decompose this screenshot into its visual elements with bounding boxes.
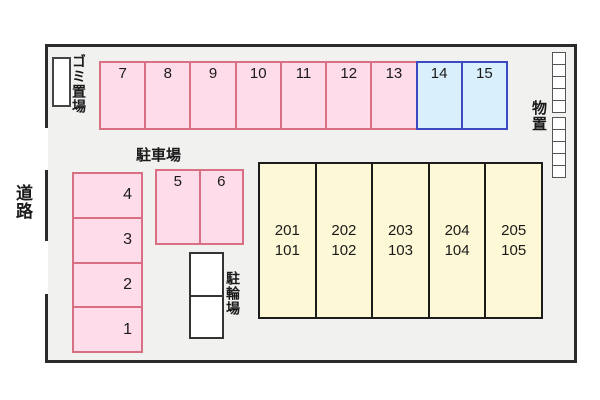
parking-space-number: 12 xyxy=(340,65,357,82)
site-border-top xyxy=(45,44,577,47)
site-layout-diagram: 道路 ゴミ置場 7 8 9 10 11 12 13 14 15 駐車場 4 3 … xyxy=(0,0,600,400)
parking-space-number: 11 xyxy=(296,65,312,82)
unit-number-upper: 201 xyxy=(275,221,300,241)
garbage-area-label: ゴミ置場 xyxy=(72,54,86,114)
parking-space: 15 xyxy=(461,61,508,130)
unit-number-upper: 204 xyxy=(445,221,470,241)
parking-space: 8 xyxy=(144,61,191,130)
site-border-right xyxy=(574,44,577,363)
parking-space-number: 6 xyxy=(217,173,225,190)
parking-space: 3 xyxy=(72,217,143,264)
site-border-left-segment-3 xyxy=(45,294,48,363)
site-border-bottom xyxy=(45,360,577,363)
parking-space-number: 1 xyxy=(123,321,132,339)
bicycle-parking-boxes xyxy=(189,252,224,339)
parking-space-number: 14 xyxy=(431,65,448,82)
parking-space-number: 2 xyxy=(123,276,132,294)
parking-space-number: 15 xyxy=(476,65,493,82)
parking-pair-center: 5 6 xyxy=(155,169,244,245)
unit-number-lower: 104 xyxy=(445,241,470,261)
storage-locker-stack-top xyxy=(552,52,566,113)
parking-space: 5 xyxy=(155,169,201,245)
parking-space: 11 xyxy=(280,61,327,130)
parking-space-number: 10 xyxy=(250,65,267,82)
parking-space-number: 4 xyxy=(123,186,132,204)
parking-space-number: 5 xyxy=(174,173,182,190)
parking-column-left: 4 3 2 1 xyxy=(72,172,143,353)
parking-space: 1 xyxy=(72,306,143,353)
unit-number-upper: 205 xyxy=(501,221,526,241)
parking-space: 7 xyxy=(99,61,146,130)
unit-number-lower: 102 xyxy=(331,241,356,261)
parking-space: 9 xyxy=(189,61,236,130)
parking-space: 2 xyxy=(72,262,143,309)
road-label: 道路 xyxy=(14,184,31,220)
parking-space: 6 xyxy=(199,169,245,245)
parking-space-number: 13 xyxy=(386,65,403,82)
parking-space-number: 7 xyxy=(118,65,126,82)
building-unit: 201 101 xyxy=(258,162,317,319)
storage-locker-stack-bottom xyxy=(552,117,566,178)
parking-row-top: 7 8 9 10 11 12 13 14 15 xyxy=(99,61,508,130)
parking-space-number: 3 xyxy=(123,231,132,249)
parking-space: 14 xyxy=(416,61,463,130)
parking-lot-label: 駐車場 xyxy=(136,144,181,165)
bicycle-parking-box xyxy=(189,295,224,340)
site-border-left-segment-2 xyxy=(45,170,48,241)
storage-locker-cell xyxy=(552,100,566,113)
parking-space: 4 xyxy=(72,172,143,219)
unit-number-upper: 203 xyxy=(388,221,413,241)
unit-number-lower: 101 xyxy=(275,241,300,261)
unit-number-upper: 202 xyxy=(331,221,356,241)
building-unit: 205 105 xyxy=(484,162,543,319)
parking-space-number: 9 xyxy=(209,65,217,82)
parking-space-number: 8 xyxy=(164,65,172,82)
building-unit: 202 102 xyxy=(315,162,374,319)
unit-number-lower: 105 xyxy=(501,241,526,261)
storage-locker-cell xyxy=(552,165,566,178)
parking-space: 10 xyxy=(235,61,282,130)
parking-space: 12 xyxy=(325,61,372,130)
unit-number-lower: 103 xyxy=(388,241,413,261)
storage-label: 物置 xyxy=(531,100,546,132)
building-unit: 204 104 xyxy=(428,162,487,319)
site-border-left-segment-1 xyxy=(45,44,48,128)
parking-space: 13 xyxy=(370,61,417,130)
building: 201 101 202 102 203 103 204 104 205 105 xyxy=(258,162,543,319)
building-unit: 203 103 xyxy=(371,162,430,319)
bicycle-parking-box xyxy=(189,252,224,297)
garbage-area-box xyxy=(52,57,71,107)
bicycle-parking-label: 駐輪場 xyxy=(226,271,240,316)
